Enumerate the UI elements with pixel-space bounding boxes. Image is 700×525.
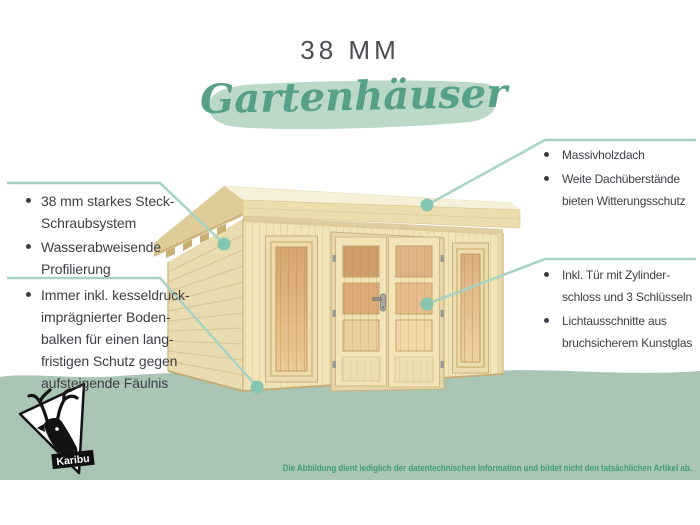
callout-item: Massivholzdach — [544, 144, 700, 166]
infographic-canvas: Karibu 38 MM Gartenhäuser 38 mm starkes … — [0, 0, 700, 525]
callout-item: Weite Dachüberstände bieten Witterungssc… — [544, 168, 700, 212]
callout-roof: Massivholzdach Weite Dachüberstände biet… — [544, 144, 700, 212]
callout-dot-roof — [421, 199, 434, 212]
page-title: 38 MM — [0, 35, 700, 66]
callout-door-glazing: Inkl. Tür mit Zylinder- schloss und 3 Sc… — [544, 264, 700, 354]
callout-text: Weite Dachüberstände bieten Witterungssc… — [562, 168, 685, 212]
callout-text: 38 mm starkes Steck- Schraubsystem — [41, 190, 174, 234]
callout-text: Wasserabweisende Profilierung — [41, 236, 161, 280]
right-window — [453, 243, 489, 373]
callout-item: 38 mm starkes Steck- Schraubsystem — [26, 190, 201, 234]
callout-text: Massivholzdach — [562, 144, 645, 166]
subtitle-script: Gartenhäuser — [200, 70, 501, 123]
bullet-dot — [544, 176, 549, 181]
left-window — [266, 236, 318, 382]
bullet-dot — [26, 292, 31, 297]
bullet-dot — [26, 198, 31, 203]
callout-item: Inkl. Tür mit Zylinder- schloss und 3 Sc… — [544, 264, 700, 308]
callout-text: Lichtausschnitte aus bruchsicherem Kunst… — [562, 310, 692, 354]
callout-text: Inkl. Tür mit Zylinder- schloss und 3 Sc… — [562, 264, 692, 308]
callout-dot-door — [421, 298, 434, 311]
callout-dot-wall — [218, 238, 231, 251]
bullet-dot — [26, 244, 31, 249]
callout-wall-system: 38 mm starkes Steck- Schraubsystem Wasse… — [26, 190, 201, 280]
callout-text: Immer inkl. kesseldruck- imprägnierter B… — [41, 284, 190, 394]
callout-dot-base — [251, 381, 264, 394]
callout-item: Lichtausschnitte aus bruchsicherem Kunst… — [544, 310, 700, 354]
disclaimer-text: Die Abbildung dient lediglich der datent… — [283, 463, 692, 473]
bullet-dot — [544, 272, 549, 277]
bullet-dot — [544, 318, 549, 323]
callout-foundation-beams: Immer inkl. kesseldruck- imprägnierter B… — [26, 284, 206, 394]
bullet-dot — [544, 152, 549, 157]
callout-item: Wasserabweisende Profilierung — [26, 236, 201, 280]
callout-item: Immer inkl. kesseldruck- imprägnierter B… — [26, 284, 206, 394]
double-door — [331, 232, 444, 391]
